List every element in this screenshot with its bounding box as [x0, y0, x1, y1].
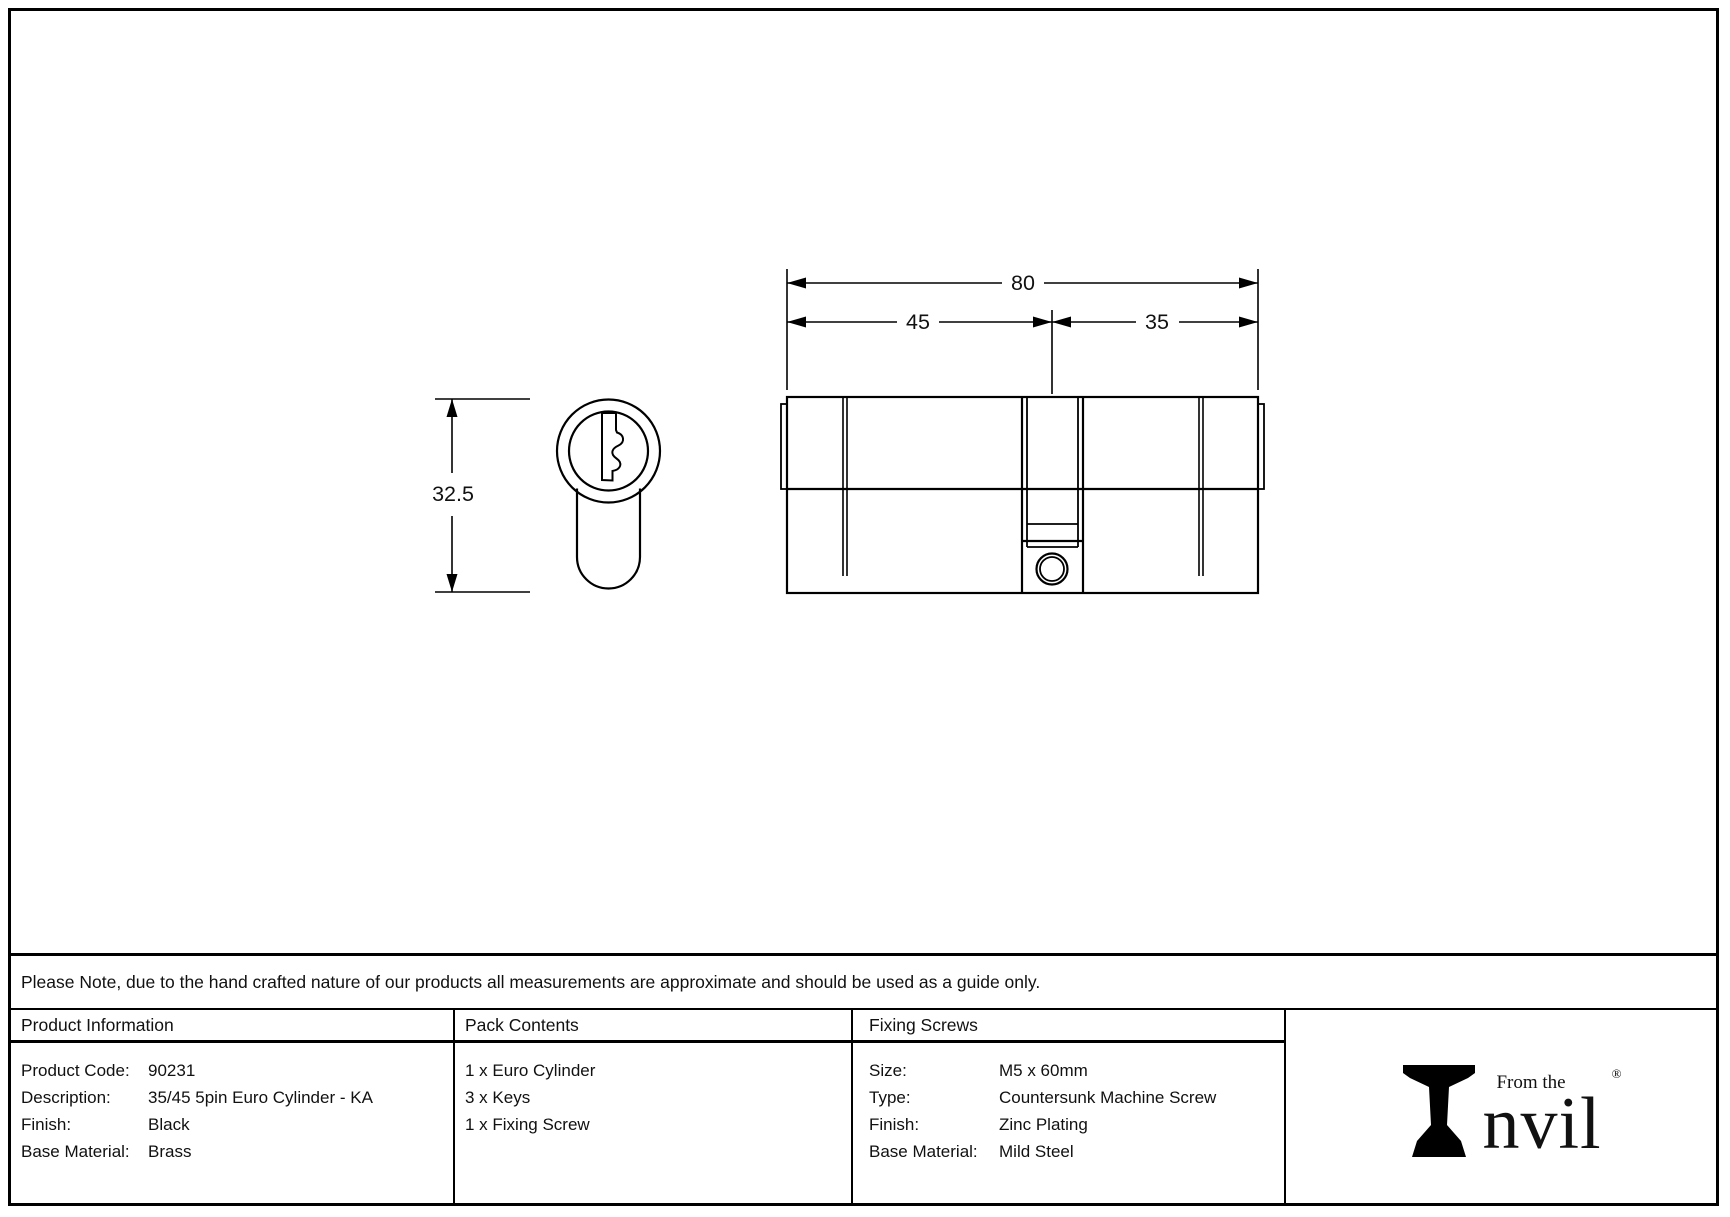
measurement-note: Please Note, due to the hand crafted nat…: [11, 956, 1716, 1010]
product-information-header: Product Information: [11, 1010, 453, 1043]
row-value: Brass: [148, 1142, 191, 1162]
spec-sheet: 80 45 35 32.5 Please Note, due to the ha…: [8, 8, 1719, 1206]
table-row: Base Material: Brass: [21, 1138, 453, 1165]
pack-contents-column: Pack Contents 1 x Euro Cylinder 3 x Keys…: [455, 1010, 853, 1203]
from-the-anvil-logo: From the nvil ®: [1400, 1063, 1601, 1159]
table-row: Description: 35/45 5pin Euro Cylinder - …: [21, 1084, 453, 1111]
list-item: 1 x Euro Cylinder: [465, 1057, 851, 1084]
table-row: Product Code: 90231: [21, 1057, 453, 1084]
dim-right-label: 35: [1145, 310, 1169, 334]
anvil-icon: [1400, 1063, 1478, 1159]
row-value: M5 x 60mm: [999, 1061, 1088, 1081]
row-label: Type:: [869, 1088, 999, 1108]
registered-trademark-icon: ®: [1612, 1066, 1622, 1082]
technical-drawing: 80 45 35 32.5: [11, 11, 1716, 956]
table-row: Finish: Black: [21, 1111, 453, 1138]
row-value: Zinc Plating: [999, 1115, 1088, 1135]
row-value: Countersunk Machine Screw: [999, 1088, 1216, 1108]
cylinder-drawing-svg: 80 45 35 32.5: [11, 11, 1716, 953]
row-label: Base Material:: [869, 1142, 999, 1162]
dim-left-label: 45: [906, 310, 930, 334]
row-value: 90231: [148, 1061, 195, 1081]
logo-brand-text: nvil: [1482, 1083, 1601, 1165]
keyhole-icon: [602, 413, 623, 481]
fixing-screws-header: Fixing Screws: [853, 1010, 1284, 1043]
row-label: Base Material:: [21, 1142, 148, 1162]
info-table: Product Information Product Code: 90231 …: [11, 1010, 1716, 1203]
row-label: Finish:: [21, 1115, 148, 1135]
table-row: Size: M5 x 60mm: [869, 1057, 1284, 1084]
face-view: [557, 400, 660, 589]
brand-logo-cell: From the nvil ®: [1286, 1010, 1716, 1203]
list-item: 3 x Keys: [465, 1084, 851, 1111]
row-label: Product Code:: [21, 1061, 148, 1081]
fixing-screw-hole: [1037, 554, 1068, 585]
logo-prefix: From the: [1496, 1072, 1565, 1094]
row-value: Mild Steel: [999, 1142, 1074, 1162]
product-information-column: Product Information Product Code: 90231 …: [11, 1010, 455, 1203]
side-view: [781, 397, 1264, 593]
pack-contents-header: Pack Contents: [455, 1010, 851, 1043]
table-row: Type: Countersunk Machine Screw: [869, 1084, 1284, 1111]
row-value: Black: [148, 1115, 190, 1135]
dim-height-label: 32.5: [432, 482, 474, 506]
table-row: Finish: Zinc Plating: [869, 1111, 1284, 1138]
note-text: Please Note, due to the hand crafted nat…: [21, 972, 1040, 993]
list-item: 1 x Fixing Screw: [465, 1111, 851, 1138]
row-label: Size:: [869, 1061, 999, 1081]
fixing-screws-column: Fixing Screws Size: M5 x 60mm Type: Coun…: [853, 1010, 1286, 1203]
row-label: Description:: [21, 1088, 148, 1108]
cam-section: [1022, 397, 1083, 593]
row-value: 35/45 5pin Euro Cylinder - KA: [148, 1088, 373, 1108]
dim-total-label: 80: [1011, 271, 1035, 295]
table-row: Base Material: Mild Steel: [869, 1138, 1284, 1165]
row-label: Finish:: [869, 1115, 999, 1135]
